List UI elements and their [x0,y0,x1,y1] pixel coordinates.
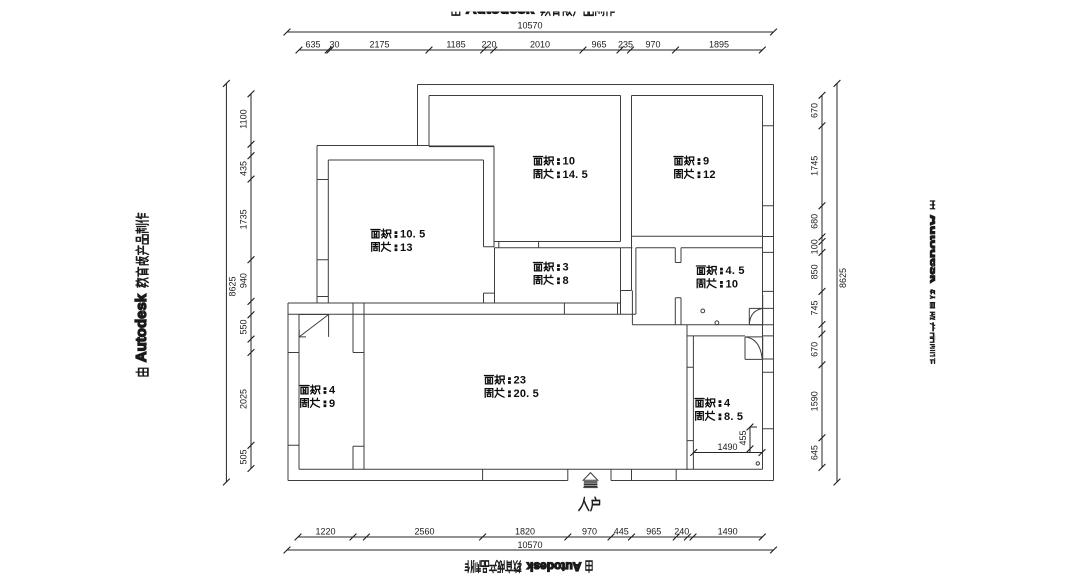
svg-text:240: 240 [674,527,689,537]
svg-text:2175: 2175 [369,40,389,50]
svg-text:20. 5: 20. 5 [514,388,539,400]
svg-text:1490: 1490 [717,442,737,452]
svg-text:Autodesk: Autodesk [133,293,150,362]
svg-text:4. 5: 4. 5 [726,265,745,277]
svg-text:220: 220 [481,40,496,50]
svg-text:550: 550 [239,319,249,334]
svg-text:1220: 1220 [315,527,335,537]
svg-text:970: 970 [645,40,660,50]
svg-text:8625: 8625 [838,268,848,288]
svg-text:10: 10 [563,156,576,168]
svg-text:670: 670 [810,342,820,357]
svg-text:1745: 1745 [810,156,820,176]
svg-text:12: 12 [703,169,716,181]
svg-text:8. 5: 8. 5 [724,411,743,423]
svg-text:14. 5: 14. 5 [563,169,588,181]
svg-text:9: 9 [329,398,335,410]
svg-text:10. 5: 10. 5 [400,229,425,241]
svg-text:1100: 1100 [239,109,249,128]
svg-text:100: 100 [810,239,820,254]
svg-text:635: 635 [305,40,320,50]
svg-text:23: 23 [514,375,527,387]
svg-text:10570: 10570 [517,540,542,550]
svg-text:2560: 2560 [414,527,434,537]
svg-text:8625: 8625 [228,276,238,296]
svg-text:Autodesk: Autodesk [526,560,581,574]
svg-text:965: 965 [591,40,606,50]
svg-text:13: 13 [400,242,413,254]
svg-text:1490: 1490 [718,527,738,537]
svg-text:10: 10 [726,279,739,291]
svg-text:645: 645 [810,445,820,460]
svg-text:3: 3 [563,262,569,274]
svg-text:30: 30 [329,40,339,50]
svg-text:970: 970 [582,527,597,537]
svg-text:670: 670 [810,103,820,118]
svg-text:9: 9 [703,156,709,168]
svg-text:10570: 10570 [517,21,542,31]
svg-text:965: 965 [646,527,661,537]
svg-text:4: 4 [329,385,336,397]
svg-text:4: 4 [724,398,731,410]
svg-text:1895: 1895 [709,40,729,50]
svg-text:435: 435 [239,161,249,176]
svg-text:455: 455 [738,430,748,445]
svg-text:745: 745 [810,300,820,315]
svg-text:8: 8 [563,275,569,287]
svg-text:445: 445 [614,527,629,537]
svg-text:850: 850 [810,264,820,279]
svg-text:Autodesk: Autodesk [926,215,943,284]
svg-text:2025: 2025 [239,389,249,409]
svg-text:1590: 1590 [810,391,820,411]
svg-text:1735: 1735 [239,209,249,229]
svg-text:1820: 1820 [515,527,535,537]
svg-text:680: 680 [810,214,820,229]
svg-text:Autodesk: Autodesk [466,0,535,17]
svg-text:235: 235 [618,40,633,50]
svg-text:1185: 1185 [446,40,465,50]
svg-text:940: 940 [239,273,249,288]
svg-text:2010: 2010 [530,40,550,50]
svg-text:505: 505 [239,449,249,464]
